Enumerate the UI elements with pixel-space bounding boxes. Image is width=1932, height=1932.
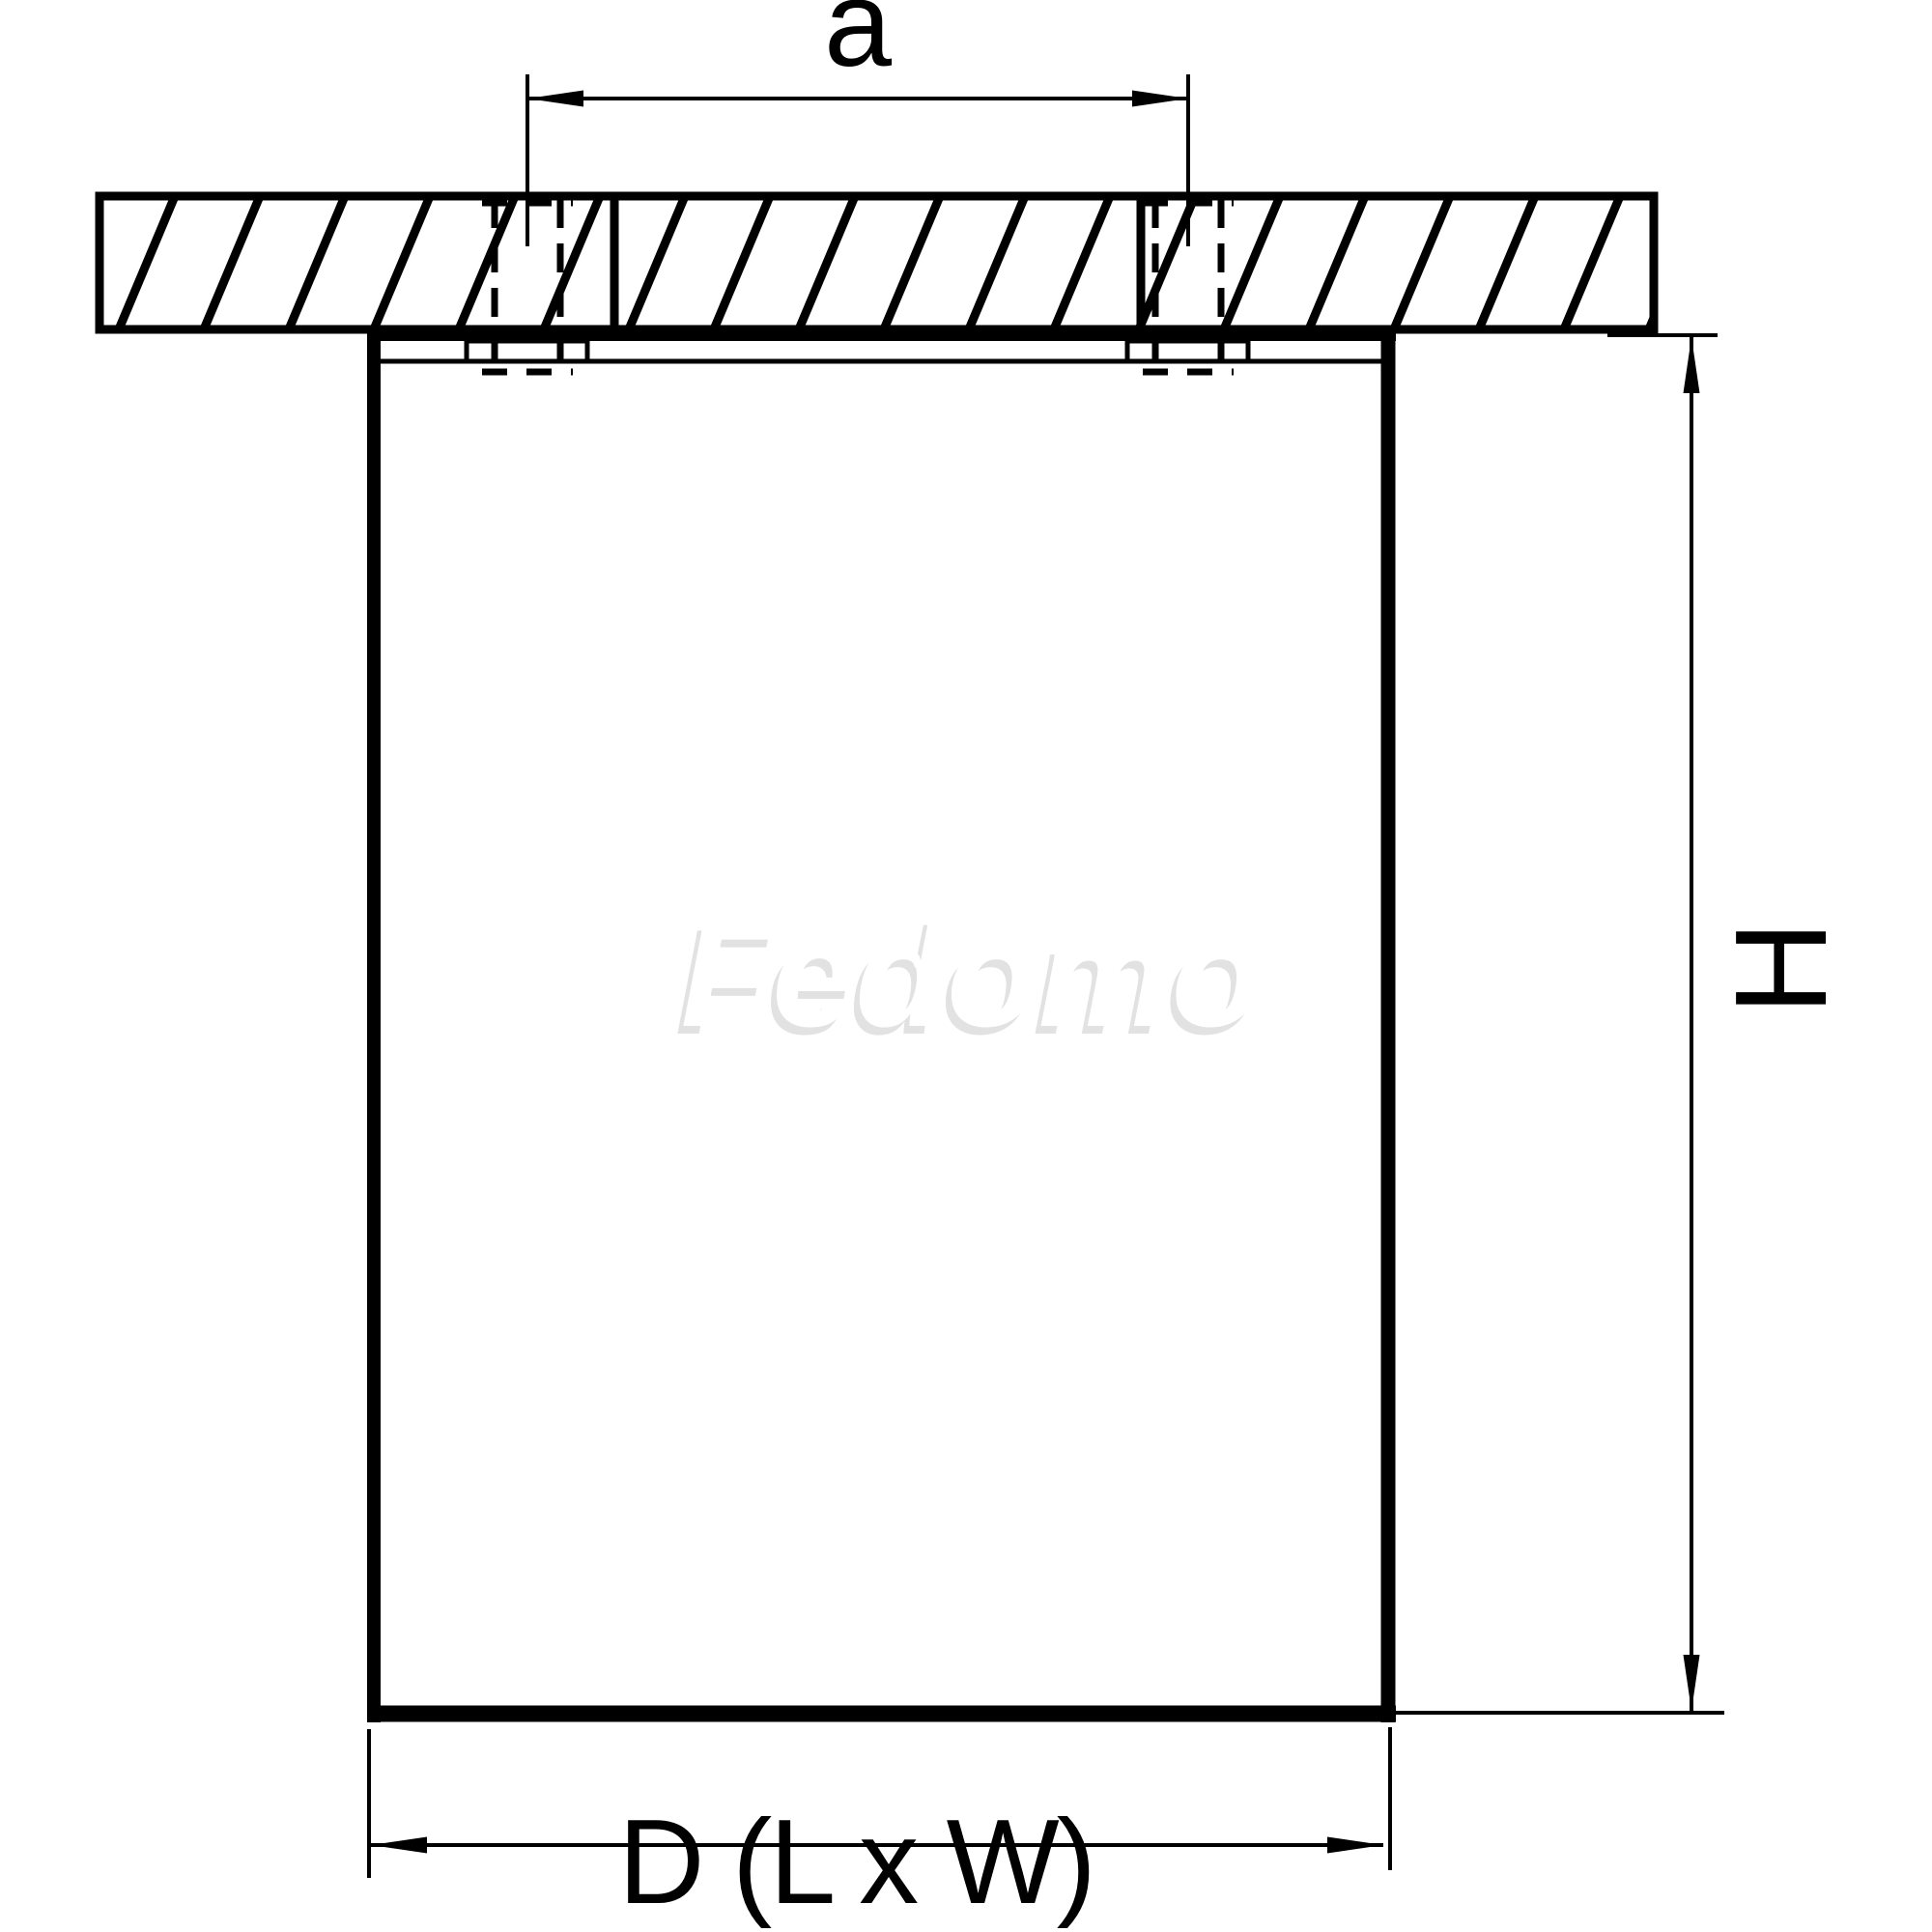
- technical-drawing-page: a H D (L x W) Fedomo Fedomo: [0, 0, 1932, 1932]
- watermark: Fedomo Fedomo: [675, 891, 1264, 1065]
- watermark-text: Fedomo: [681, 891, 1264, 1058]
- dim-d-label: D (L x W): [618, 1796, 1094, 1929]
- fixture-mounting-diagram: a H D (L x W) Fedomo Fedomo: [0, 0, 1932, 1932]
- screw-tab-right: [1127, 341, 1248, 361]
- dim-h-label: H: [1708, 921, 1854, 1015]
- ceiling-plate: [99, 196, 1654, 329]
- dim-a-label: a: [824, 0, 893, 92]
- screw-tab-left: [467, 341, 587, 361]
- ceiling-plate-hatched-body: [99, 196, 1654, 329]
